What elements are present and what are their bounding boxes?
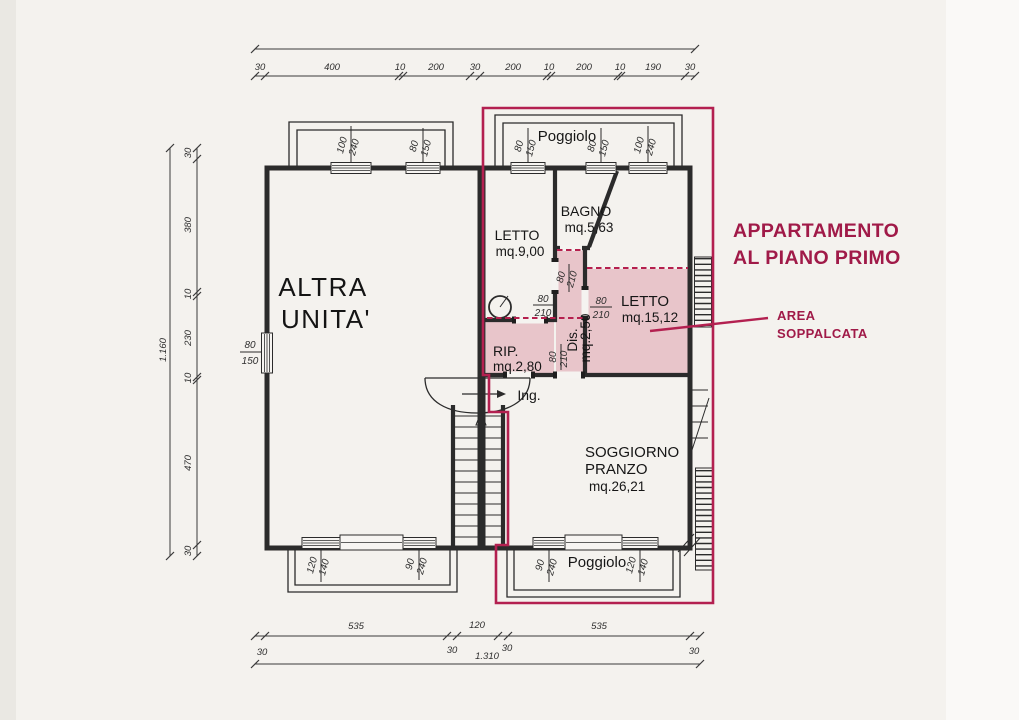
left-dim-label: 10 (183, 288, 194, 299)
bottom-dim-total: 1.310 (475, 651, 499, 662)
left-dim-label: 380 (183, 216, 194, 233)
left-dim-label: 470 (183, 454, 194, 471)
top-dim-label: 10 (544, 62, 555, 73)
bottom-dim-edge: 30 (502, 643, 513, 654)
bottom-dim-label: 535 (591, 621, 608, 632)
page-title-line1: APPARTAMENTO (733, 220, 899, 242)
left-dim-label: 30 (183, 545, 194, 556)
top-dim-label: 200 (504, 62, 522, 73)
callout-line2: SOPPALCATA (777, 326, 868, 341)
left-dim-label: 230 (183, 329, 194, 347)
room-letto1-area: mq.9,00 (496, 244, 545, 259)
top-dim-label: 200 (427, 62, 445, 73)
room-letto2-name: LETTO (621, 293, 669, 310)
top-dim-label: 190 (645, 62, 662, 73)
room-soggiorno-name2: PRANZO (585, 461, 648, 478)
bottom-dim-edge: 30 (447, 645, 458, 656)
room-letto2-area: mq.15,12 (622, 310, 678, 325)
room-rip-name: RIP. (493, 343, 518, 359)
top-dim-label: 30 (685, 62, 696, 73)
top-dim-label: 400 (324, 62, 341, 73)
left-dim-total: 1.160 (158, 337, 169, 361)
door-dim-b: 210 (592, 310, 610, 321)
left-dim-label: 30 (183, 147, 194, 158)
room-letto1-name: LETTO (495, 227, 540, 243)
room-bagno-area: mq.5,63 (565, 220, 614, 235)
bottom-dim-label: 120 (469, 620, 486, 631)
left-unit-name-line2: UNITA' (281, 304, 371, 334)
top-dim-label: 30 (255, 62, 266, 73)
room-bagno-name: BAGNO (561, 203, 612, 219)
room-soggiorno-name1: SOGGIORNO (585, 444, 679, 461)
floor-plan-drawing: 30 400 10 200 30 200 10 200 10 190 30 1.… (0, 0, 1019, 720)
door-dim-a: 80 (548, 351, 559, 363)
left-dim-label: 10 (183, 372, 194, 383)
window-dim: 80 (244, 340, 256, 351)
room-rip-area: mq.2,80 (493, 359, 542, 374)
floor-plan-scan: 30 400 10 200 30 200 10 200 10 190 30 1.… (0, 0, 1019, 720)
bottom-dim-edge: 30 (689, 646, 700, 657)
door-dim-a: 80 (537, 294, 549, 305)
left-unit-name-line1: ALTRA (278, 272, 367, 302)
door-dim-b: 210 (559, 350, 570, 368)
door-dim-a: 80 (595, 296, 607, 307)
top-dim-label: 10 (395, 62, 406, 73)
page-title-line2: AL PIANO PRIMO (733, 247, 901, 269)
top-dim-label: 30 (470, 62, 481, 73)
bottom-dim-label: 535 (348, 621, 365, 632)
poggiolo-bottom-label: Poggiolo (568, 554, 626, 571)
window-dim: 150 (242, 356, 259, 367)
top-dim-label: 200 (575, 62, 593, 73)
room-soggiorno-area: mq.26,21 (589, 479, 645, 494)
bottom-dim-edge: 30 (257, 647, 268, 658)
room-dis-area: mq.2,50 (578, 314, 593, 363)
callout-line1: AREA (777, 308, 816, 323)
top-dim-label: 10 (615, 62, 626, 73)
entrance-label: Ing. (517, 387, 540, 403)
